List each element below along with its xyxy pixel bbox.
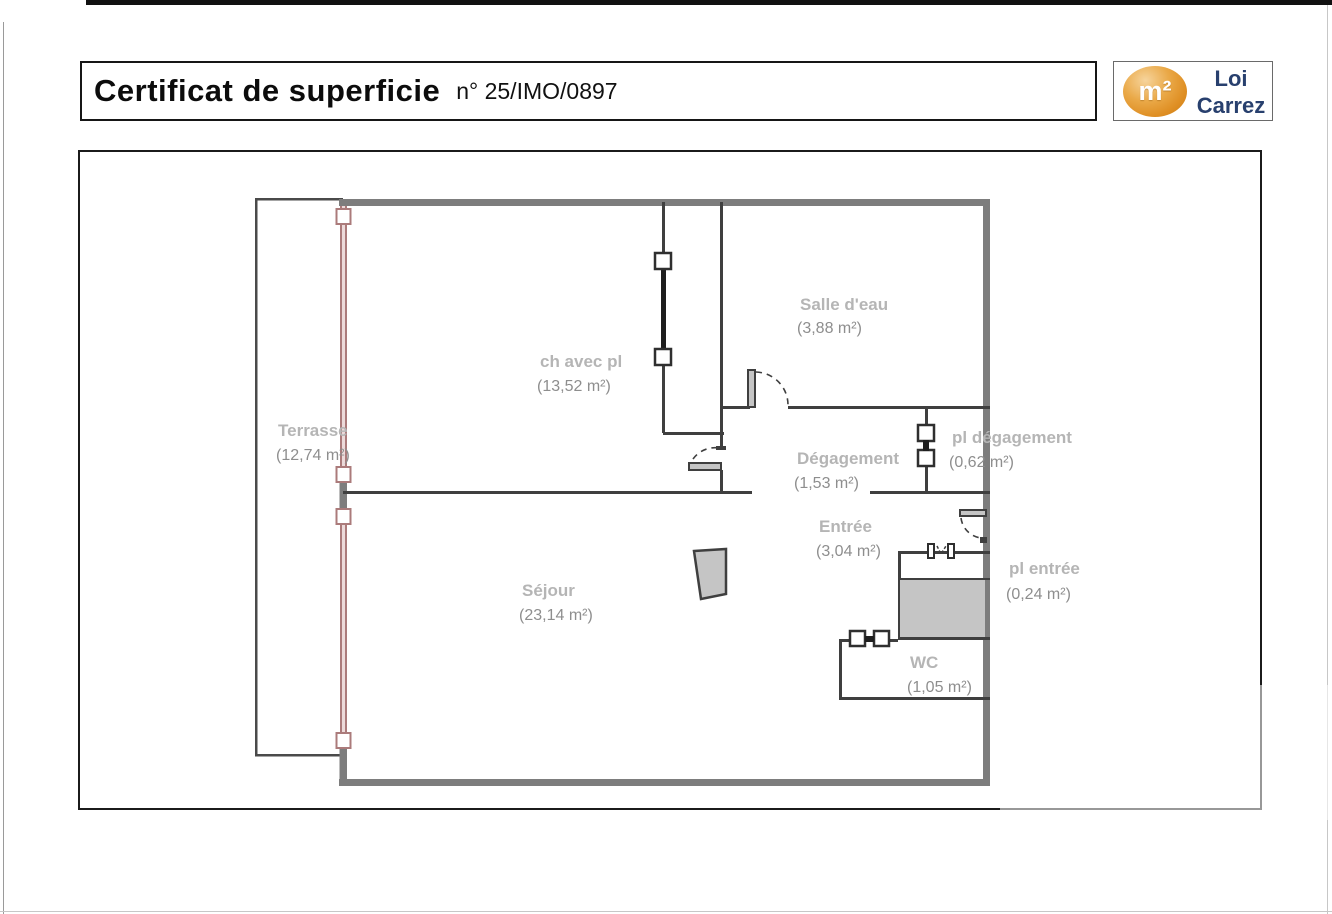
sejour-open-door-leaf xyxy=(694,549,726,599)
pl-degagement-door-marker xyxy=(918,425,934,441)
room-label-name: Terrasse xyxy=(278,421,348,440)
pl-entree-door-post xyxy=(948,544,954,558)
wc-door-link xyxy=(865,636,874,642)
certificate-number: n° 25/IMO/0897 xyxy=(456,78,617,105)
pl-degagement-door-marker xyxy=(918,450,934,466)
pl-degagement-door-link xyxy=(923,440,929,451)
room-label-area: (1,53 m²) xyxy=(794,475,859,492)
room-label-name: WC xyxy=(910,653,938,672)
room-label-area: (0,24 m²) xyxy=(1006,586,1071,603)
window-end-marker xyxy=(337,467,351,482)
closet-door-marker xyxy=(655,253,671,269)
floor-plan: Terrasse (12,74 m²) ch avec pl (13,52 m²… xyxy=(80,152,1260,808)
room-label-area: (3,04 m²) xyxy=(816,543,881,560)
bathroom-door-swing-arc xyxy=(756,372,788,405)
entrance-door-leaf xyxy=(960,510,986,516)
wc-door-marker xyxy=(874,631,889,646)
wall-closet-bottom xyxy=(663,432,724,435)
room-label-name: ch avec pl xyxy=(540,352,622,371)
room-label-area: (23,14 m²) xyxy=(519,607,593,624)
wall-bedroom-right-lower xyxy=(720,470,723,493)
wall-pl-entree-bottom xyxy=(898,637,990,640)
entrance-door-swing-arc xyxy=(961,518,981,538)
wall-stub xyxy=(340,748,348,780)
bedroom-door-leaf xyxy=(689,463,721,470)
logo-text: Loi Carrez xyxy=(1192,65,1270,119)
bedroom-door-jamb xyxy=(716,446,726,450)
window-end-marker xyxy=(337,733,351,748)
terrace-wall-bottom xyxy=(255,754,343,757)
wall-bathroom-south xyxy=(720,406,750,409)
wall-hall-south xyxy=(870,491,990,494)
wall-bedroom-right xyxy=(720,202,723,450)
m2-logo-icon: m² xyxy=(1123,66,1187,117)
room-label-area: (13,52 m²) xyxy=(537,378,611,395)
room-label-area: (3,88 m²) xyxy=(797,320,862,337)
logo-line-carrez: Carrez xyxy=(1192,92,1270,119)
loi-carrez-logo: m² Loi Carrez xyxy=(1113,61,1273,121)
certificate-page: { "page": { "title": "Certificat de supe… xyxy=(0,0,1332,914)
logo-line-loi: Loi xyxy=(1192,65,1270,92)
room-label-name: Salle d'eau xyxy=(800,295,888,314)
wall-bathroom-south xyxy=(788,406,990,409)
closet-door-marker xyxy=(655,349,671,365)
room-label-area: (0,62 m²) xyxy=(949,454,1014,471)
scan-edge-left xyxy=(3,22,4,914)
m2-symbol: m² xyxy=(1139,78,1172,105)
room-label-area: (1,05 m²) xyxy=(907,679,972,696)
wall-sejour-north xyxy=(343,491,752,494)
room-label-name: Dégagement xyxy=(797,449,899,468)
room-label-name: Séjour xyxy=(522,581,575,600)
bathroom-door-leaf xyxy=(748,370,755,407)
pl-entree-fill xyxy=(900,580,985,637)
room-label-name: pl entrée xyxy=(1009,559,1080,578)
terrace-wall-left xyxy=(255,198,258,756)
room-label-name: pl dégagement xyxy=(952,428,1072,447)
wall-stub xyxy=(340,482,348,510)
outer-wall-bottom xyxy=(339,779,990,786)
terrace-wall-top xyxy=(255,198,343,201)
closet-door-panel xyxy=(661,269,666,350)
room-label-area: (12,74 m²) xyxy=(276,447,350,464)
scan-edge-right xyxy=(1327,5,1328,914)
wall-pl-entree-top xyxy=(898,551,990,554)
window-end-marker xyxy=(337,209,351,224)
scan-edge-bottom xyxy=(0,911,1332,912)
wc-door-marker xyxy=(850,631,865,646)
pl-entree-door-post xyxy=(928,544,934,558)
room-label-name: Entrée xyxy=(819,517,872,536)
page-title: Certificat de superficie xyxy=(94,73,440,109)
wall-wc-bottom xyxy=(839,697,990,700)
floor-plan-frame: Terrasse (12,74 m²) ch avec pl (13,52 m²… xyxy=(78,150,1262,810)
title-bar: Certificat de superficie n° 25/IMO/0897 xyxy=(80,61,1097,121)
wall-wc-left xyxy=(839,639,842,699)
bedroom-door-swing-arc xyxy=(693,448,719,459)
scan-edge-top xyxy=(86,0,1332,5)
entrance-door-hinge xyxy=(980,537,987,543)
terrace-outline xyxy=(255,198,343,757)
wall-pl-entree-mid xyxy=(898,578,990,580)
window-end-marker xyxy=(337,509,351,524)
